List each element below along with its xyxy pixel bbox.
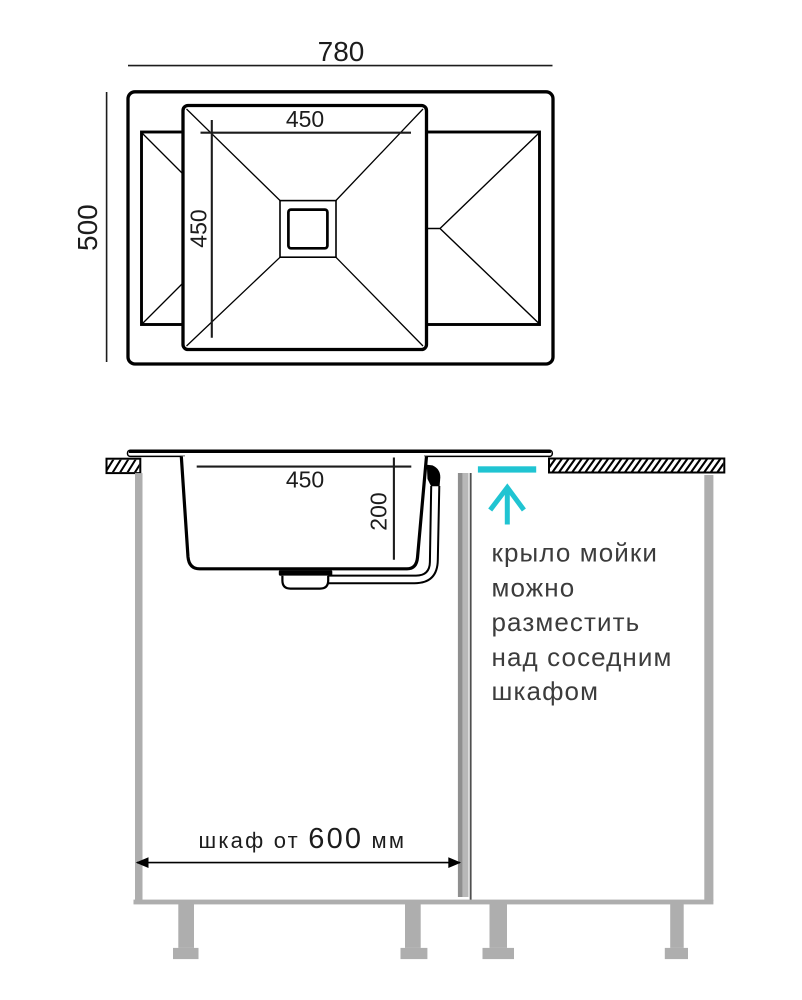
svg-text:шкаф от 600 мм: шкаф от 600 мм xyxy=(199,823,407,855)
svg-text:шкафом: шкафом xyxy=(492,676,600,706)
svg-text:780: 780 xyxy=(318,36,365,67)
svg-text:450: 450 xyxy=(186,209,212,247)
svg-text:над соседним: над соседним xyxy=(492,642,673,672)
svg-text:можно: можно xyxy=(492,572,576,602)
svg-text:200: 200 xyxy=(366,492,392,530)
svg-text:450: 450 xyxy=(286,106,324,132)
svg-text:разместить: разместить xyxy=(492,607,641,637)
svg-text:450: 450 xyxy=(286,467,324,493)
svg-text:крыло мойки: крыло мойки xyxy=(492,538,659,568)
svg-text:500: 500 xyxy=(72,204,103,251)
